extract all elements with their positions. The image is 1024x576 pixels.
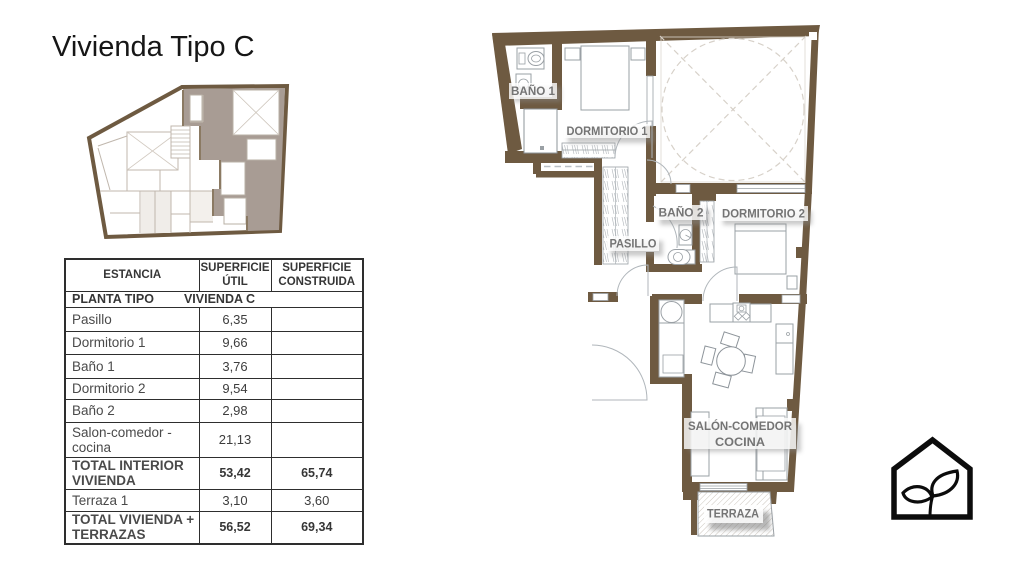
svg-text:BAÑO 1: BAÑO 1 xyxy=(511,83,555,98)
svg-text:BAÑO 2: BAÑO 2 xyxy=(659,205,704,220)
svg-text:DORMITORIO 1: DORMITORIO 1 xyxy=(567,124,648,138)
svg-text:TERRAZA: TERRAZA xyxy=(707,507,759,521)
svg-text:COCINA: COCINA xyxy=(715,435,765,449)
svg-text:PASILLO: PASILLO xyxy=(610,237,657,251)
svg-text:SALÓN-COMEDOR: SALÓN-COMEDOR xyxy=(688,418,792,433)
svg-text:DORMITORIO 2: DORMITORIO 2 xyxy=(722,207,805,221)
